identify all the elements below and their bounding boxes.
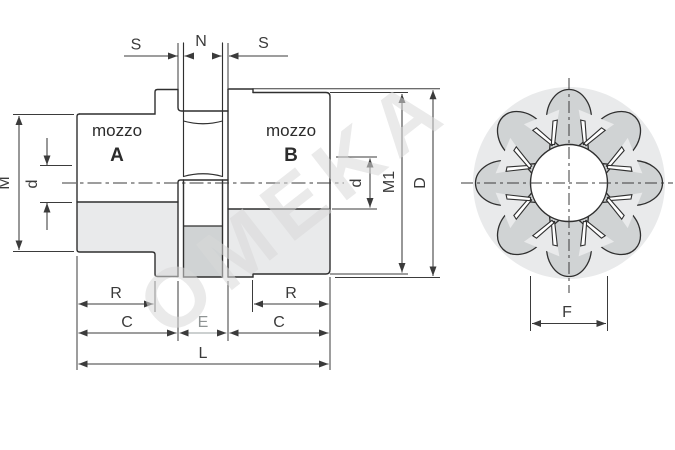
hub-a-id: A (110, 145, 124, 166)
dim-label-d-outer: D (412, 177, 429, 189)
dim-label-r-right: R (285, 285, 297, 302)
coupling-drawing: S N S M d d M1 D R (0, 0, 675, 450)
technical-drawing-page: S N S M d d M1 D R (0, 0, 675, 450)
dim-label-s-right: S (258, 35, 269, 52)
hub-a-body-section (77, 202, 155, 252)
dimension-f: F (531, 276, 608, 331)
hub-a-label: mozzo (92, 121, 142, 140)
front-view: F (461, 78, 673, 331)
dim-label-l: L (199, 345, 208, 362)
dim-label-c-right: C (273, 314, 285, 331)
dim-label-f: F (562, 304, 572, 321)
dimension-top-sns: S N S (124, 33, 288, 89)
dim-label-c-left: C (121, 314, 133, 331)
dim-label-m: M (0, 176, 13, 189)
dim-label-s-left: S (131, 37, 142, 54)
dim-label-r-left: R (110, 285, 122, 302)
dim-label-d-left: d (24, 180, 41, 189)
dim-label-n: N (195, 33, 207, 50)
